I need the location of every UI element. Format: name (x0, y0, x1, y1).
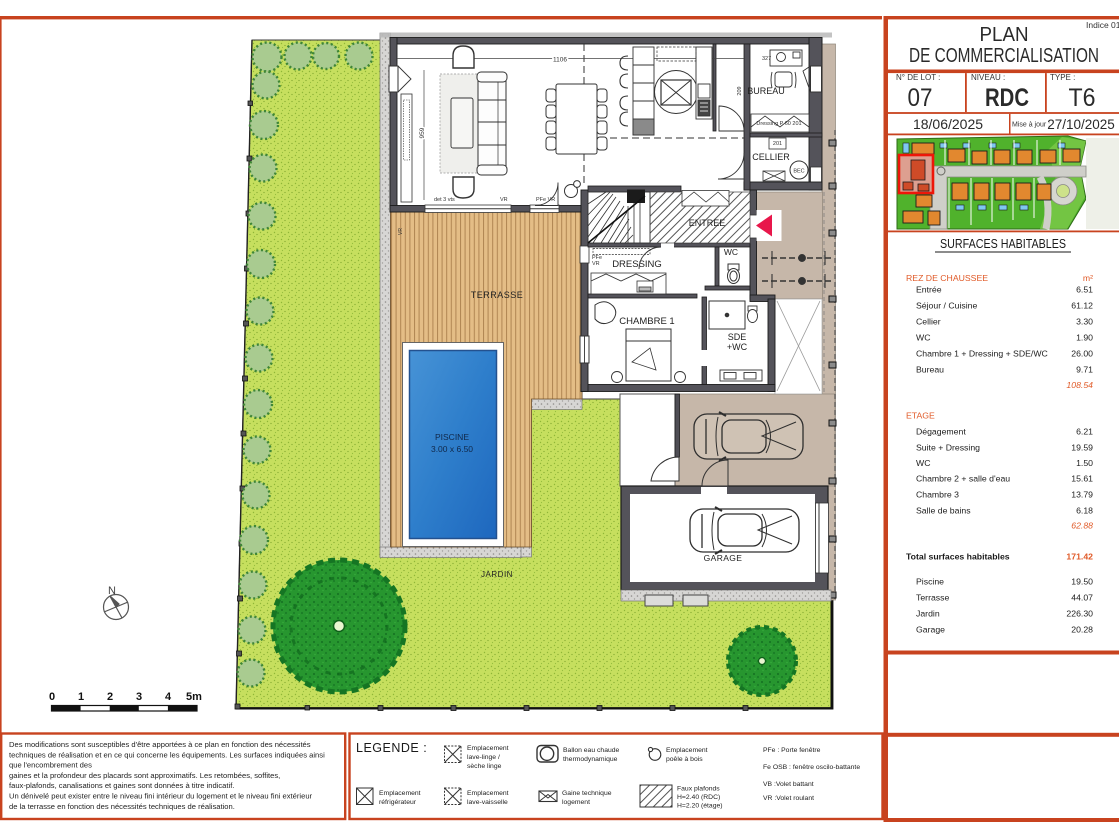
svg-text:GARAGE: GARAGE (704, 553, 743, 563)
svg-text:DE COMMERCIALISATION: DE COMMERCIALISATION (909, 45, 1099, 67)
svg-text:de la terrasse en fonction des: de la terrasse en fonction des nécessité… (9, 802, 235, 811)
svg-text:det 3 vts: det 3 vts (434, 197, 455, 203)
svg-text:Ballon eau chaude: Ballon eau chaude (563, 747, 620, 754)
svg-text:Garage: Garage (916, 625, 945, 635)
svg-text:RDC: RDC (985, 84, 1029, 112)
svg-text:1: 1 (78, 691, 84, 703)
svg-text:m²: m² (1083, 273, 1093, 283)
svg-text:6.21: 6.21 (1076, 427, 1093, 437)
svg-text:5m: 5m (186, 691, 202, 703)
svg-text:N: N (108, 585, 116, 597)
svg-text:LEGENDE :: LEGENDE : (356, 741, 427, 755)
svg-text:201: 201 (773, 141, 782, 147)
svg-text:techniques de réalisation et e: techniques de réalisation et en ce qui c… (9, 750, 325, 759)
svg-text:WC: WC (916, 333, 930, 343)
svg-text:Terrasse: Terrasse (916, 593, 949, 603)
svg-text:Chambre 3: Chambre 3 (916, 490, 959, 500)
svg-text:VR: VR (398, 228, 404, 235)
svg-text:18/06/2025: 18/06/2025 (913, 116, 983, 132)
svg-text:Emplacement: Emplacement (467, 790, 509, 797)
svg-text:Emplacement: Emplacement (379, 790, 421, 797)
svg-text:1106: 1106 (553, 57, 567, 64)
svg-text:CHAMBRE 1: CHAMBRE 1 (619, 316, 674, 327)
svg-text:6.18: 6.18 (1076, 506, 1093, 516)
svg-text:PISCINE: PISCINE (435, 432, 469, 442)
svg-text:gaines et la profondeur des pl: gaines et la profondeur des placards son… (9, 771, 280, 780)
svg-text:WC: WC (916, 458, 930, 468)
svg-text:327: 327 (762, 56, 771, 62)
svg-text:Suite + Dressing: Suite + Dressing (916, 443, 980, 453)
svg-text:SURFACES HABITABLES: SURFACES HABITABLES (940, 236, 1066, 251)
svg-text:15.61: 15.61 (1071, 474, 1093, 484)
svg-text:VB :Volet battant: VB :Volet battant (763, 781, 814, 788)
svg-text:PFe : Porte fenêtre: PFe : Porte fenêtre (763, 747, 821, 754)
svg-text:VR: VR (500, 197, 508, 203)
svg-text:Emplacement: Emplacement (467, 745, 509, 752)
svg-text:BEC: BEC (793, 169, 804, 175)
svg-text:lave-vaisselle: lave-vaisselle (467, 799, 508, 806)
svg-text:thermodynamique: thermodynamique (563, 756, 618, 763)
svg-text:Chambre 2 + salle d'eau: Chambre 2 + salle d'eau (916, 474, 1010, 484)
svg-text:26.00: 26.00 (1071, 349, 1093, 359)
svg-text:Fe OSB : fenêtre oscilo-battan: Fe OSB : fenêtre oscilo-battante (763, 764, 860, 771)
svg-text:SDE: SDE (728, 332, 747, 342)
svg-text:ENTREE: ENTREE (689, 218, 726, 228)
svg-text:NIVEAU :: NIVEAU : (971, 73, 1005, 82)
svg-text:61.12: 61.12 (1071, 301, 1093, 311)
svg-text:Jardin: Jardin (916, 609, 940, 619)
svg-text:1.50: 1.50 (1076, 458, 1093, 468)
svg-text:T6: T6 (1069, 84, 1096, 112)
svg-text:13.79: 13.79 (1071, 490, 1093, 500)
svg-text:H=2.40 (RDC): H=2.40 (RDC) (677, 794, 720, 801)
svg-text:Entrée: Entrée (916, 285, 942, 295)
svg-text:07: 07 (908, 84, 933, 112)
svg-text:209: 209 (737, 86, 743, 95)
svg-text:3.00 x 6.50: 3.00 x 6.50 (431, 444, 473, 454)
svg-text:Emplacement: Emplacement (666, 747, 708, 754)
svg-text:20.28: 20.28 (1071, 625, 1093, 635)
svg-text:PLAN: PLAN (980, 24, 1029, 46)
svg-text:27/10/2025: 27/10/2025 (1047, 117, 1115, 132)
svg-text:PFe VR: PFe VR (536, 197, 555, 203)
svg-text:9.71: 9.71 (1076, 365, 1093, 375)
svg-text:TERRASSE: TERRASSE (471, 290, 524, 300)
svg-text:226.30: 226.30 (1066, 609, 1093, 619)
svg-text:Total surfaces habitables: Total surfaces habitables (906, 552, 1010, 562)
svg-text:JARDIN: JARDIN (481, 570, 513, 579)
svg-text:6.51: 6.51 (1076, 285, 1093, 295)
svg-text:ETAGE: ETAGE (906, 411, 935, 421)
svg-text:0: 0 (49, 691, 55, 703)
svg-text:Salle de bains: Salle de bains (916, 506, 971, 516)
svg-text:VR :Volet roulant: VR :Volet roulant (763, 795, 814, 802)
svg-text:Dressing P 60 201: Dressing P 60 201 (756, 121, 801, 127)
svg-text:BUREAU: BUREAU (747, 86, 785, 96)
svg-text:VR: VR (592, 261, 600, 267)
svg-text:44.07: 44.07 (1071, 593, 1093, 603)
svg-text:Faux plafonds: Faux plafonds (677, 786, 720, 793)
svg-text:logement: logement (562, 799, 590, 806)
svg-text:Gaine technique: Gaine technique (562, 790, 612, 797)
svg-text:sèche linge: sèche linge (467, 763, 502, 770)
svg-text:108.54: 108.54 (1066, 380, 1093, 390)
svg-text:3: 3 (136, 691, 142, 703)
svg-text:Indice 01: Indice 01 (1086, 20, 1119, 30)
svg-text:Chambre 1 + Dressing + SDE/WC: Chambre 1 + Dressing + SDE/WC (916, 349, 1048, 359)
svg-text:1.90: 1.90 (1076, 333, 1093, 343)
svg-text:faux-plafonds, canalisations e: faux-plafonds, canalisations et gaines s… (9, 781, 234, 790)
svg-text:DRESSING: DRESSING (612, 259, 662, 270)
svg-text:Cellier: Cellier (916, 317, 941, 327)
svg-text:H=2.20 (étage): H=2.20 (étage) (677, 803, 723, 810)
svg-text:Des modifications sont suscept: Des modifications sont susceptibles d'êt… (9, 740, 311, 749)
svg-text:Dégagement: Dégagement (916, 427, 966, 437)
svg-text:Mise à jour :: Mise à jour : (1012, 122, 1050, 129)
svg-text:959: 959 (419, 127, 426, 138)
svg-text:19.59: 19.59 (1071, 443, 1093, 453)
svg-text:CELLIER: CELLIER (752, 152, 790, 162)
svg-text:19.50: 19.50 (1071, 577, 1093, 587)
svg-text:62.88: 62.88 (1071, 521, 1093, 531)
svg-text:TYPE :: TYPE : (1050, 73, 1075, 82)
svg-text:Un dénivelé peut exister entre: Un dénivelé peut exister entre le niveau… (9, 792, 313, 801)
svg-text:171.42: 171.42 (1066, 552, 1093, 562)
svg-text:+WC: +WC (727, 342, 748, 352)
svg-text:3.30: 3.30 (1076, 317, 1093, 327)
svg-text:lave-linge /: lave-linge / (467, 754, 500, 761)
svg-text:WC: WC (724, 247, 738, 257)
svg-text:4: 4 (165, 691, 172, 703)
svg-text:que l'encombrement des: que l'encombrement des (9, 761, 92, 770)
svg-text:REZ DE CHAUSSEE: REZ DE CHAUSSEE (906, 273, 988, 283)
svg-text:Bureau: Bureau (916, 365, 944, 375)
svg-text:réfrigérateur: réfrigérateur (379, 799, 417, 806)
svg-text:2: 2 (107, 691, 113, 703)
svg-text:N° DE LOT :: N° DE LOT : (896, 73, 940, 82)
svg-text:Séjour / Cuisine: Séjour / Cuisine (916, 301, 977, 311)
svg-text:Piscine: Piscine (916, 577, 944, 587)
svg-text:poêle à bois: poêle à bois (666, 756, 703, 763)
